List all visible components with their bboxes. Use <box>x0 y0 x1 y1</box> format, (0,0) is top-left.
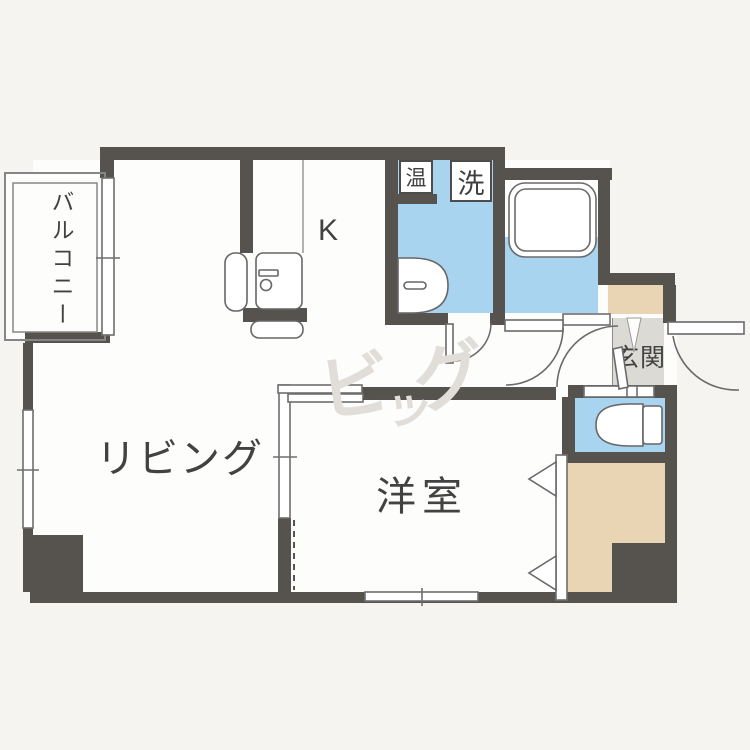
balcony-outer-rail <box>5 173 105 340</box>
bathtub-outer <box>509 183 596 257</box>
toilet-tank <box>643 406 662 444</box>
entrance-step-notch <box>627 318 641 352</box>
entrance-inner-door-arc <box>557 326 618 387</box>
closet-door-panel <box>556 455 567 600</box>
closet-door-swing-upper <box>529 462 556 496</box>
toilet-bowl <box>596 404 643 446</box>
balcony-inner-rail <box>13 183 97 332</box>
entry-door-leaf <box>668 322 744 334</box>
closet-door-swing-lower <box>529 556 556 590</box>
washcounter-partition <box>563 314 610 325</box>
entrance-inner-door-leaf <box>613 347 628 389</box>
westernroom-left-slider <box>279 385 290 518</box>
entry-door-arc <box>673 336 739 390</box>
washbasin-faucet <box>404 282 426 289</box>
balcony-window <box>102 178 114 335</box>
kitchen-faucet-knob <box>261 280 272 291</box>
kitchen-stove-front <box>251 321 303 338</box>
kitchen-faucet-bar <box>259 270 278 276</box>
kitchen-counter-left <box>225 253 247 311</box>
left-window <box>23 410 33 528</box>
floor-plan: ビ ッ グ バルコニー リビング K 洋室 玄関 温 洗 <box>0 0 750 750</box>
bathroom-door-arc <box>506 328 563 385</box>
bathroom-door-leaf <box>505 320 563 331</box>
